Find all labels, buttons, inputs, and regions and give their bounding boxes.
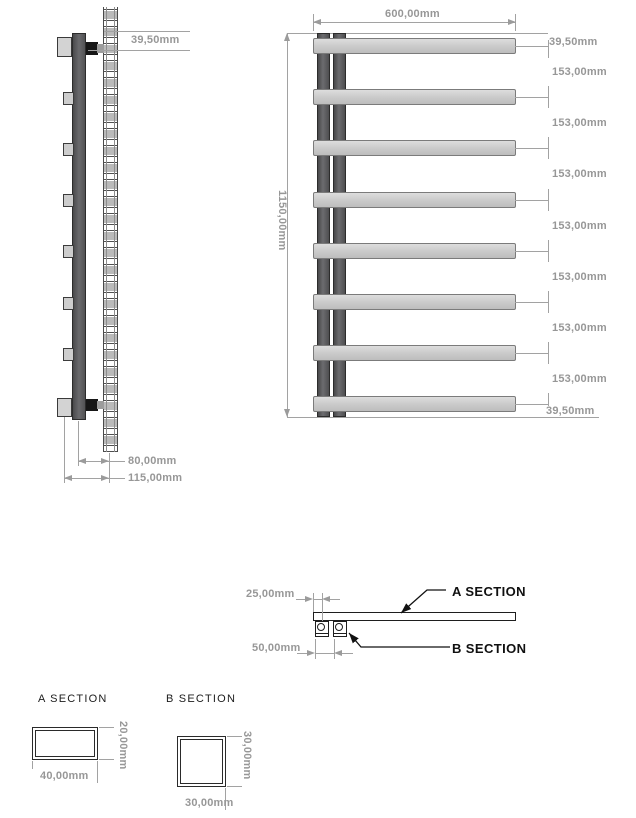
leader-line [515,200,548,201]
dimension-label: 20,00mm [116,721,129,771]
wall-tab [63,143,74,156]
bottom-connector-arm [97,401,104,409]
bar-section-cut [313,612,516,621]
dimension-label: 50,00mm [252,642,301,654]
dimension-label: 153,00mm [552,271,607,283]
a-section-callout: A SECTION [452,584,526,599]
tick-line [548,240,549,262]
dimension-line [64,478,125,479]
arrowhead-icon [334,650,342,656]
extension-line [99,727,114,728]
leader-line [515,46,548,47]
dimension-label: 40,00mm [40,770,89,782]
dimension-line [313,599,322,600]
dimension-label: 39,50mm [546,405,595,417]
tick-line [322,593,323,621]
b-section-leader-arrow [345,628,455,654]
dimension-label: 153,00mm [552,168,607,180]
arrowhead-icon [284,33,290,41]
dimension-label: 80,00mm [128,455,177,467]
towel-bar [313,243,516,259]
dimension-line [330,599,340,600]
arrowhead-icon [313,19,321,25]
top-connector-arm [97,44,104,53]
dimension-label: 39,50mm [131,34,180,46]
arrowhead-icon [101,458,109,464]
dimension-label: 1150,00mm [275,190,288,268]
dimension-label: 25,00mm [246,588,295,600]
arrowhead-icon [64,475,72,481]
dimension-line [342,653,353,654]
towel-bar [313,294,516,310]
arrowhead-icon [78,458,86,464]
dimension-label: 153,00mm [552,66,607,78]
tick-line [548,291,549,313]
dimension-label: 153,00mm [552,373,607,385]
arrowhead-icon [322,596,330,602]
towel-bar [313,192,516,208]
dimension-label: 153,00mm [552,117,607,129]
wall-tab [63,194,74,207]
towel-bar [313,345,516,361]
a-section-profile-inner-wall [35,730,95,757]
dimension-label: 30,00mm [185,797,234,809]
extension-line [32,761,33,769]
extension-line [287,417,599,418]
leader-line [515,353,548,354]
wall-tab [63,92,74,105]
towel-bar [313,140,516,156]
dimension-label: 30,00mm [240,731,253,788]
dimension-label: 600,00mm [385,8,440,20]
dimension-label: 153,00mm [552,220,607,232]
dimension-line [313,22,516,23]
tick-line [548,137,549,159]
towel-bar [313,89,516,105]
rail-panel-profile [103,7,118,452]
extension-line [99,759,114,760]
extension-line [104,31,190,32]
tube-section-line [334,633,346,634]
extension-line [97,761,98,783]
dimension-label: 153,00mm [552,322,607,334]
tick-line [315,639,316,659]
leader-line [515,302,548,303]
tick-line [548,342,549,364]
leader-line [515,404,548,405]
arrowhead-icon [307,650,315,656]
tick-line [313,593,314,612]
tick-line [548,189,549,211]
leader-line [515,251,548,252]
tube-section-cut [333,621,347,637]
b-section-callout: B SECTION [452,641,526,656]
wall-tab [63,245,74,258]
a-section-profile [32,727,98,760]
extension-line [64,417,65,483]
wall-tab [63,348,74,361]
tube-bore-circle-icon [335,623,343,631]
arrowhead-icon [305,596,313,602]
technical-drawing-page: 39,50mm 80,00mm 115,00mm [0,0,636,818]
dimension-label: 39,50mm [549,36,598,48]
tick-line [548,86,549,108]
tick-line [334,639,335,659]
towel-bar [313,396,516,412]
tube-section-cut [315,621,329,637]
dimension-line [315,653,334,654]
extension-line [88,50,190,51]
wall-tab [63,297,74,310]
arrowhead-icon [508,19,516,25]
detail-a-title: A SECTION [38,693,107,705]
leader-line [515,97,548,98]
arrowhead-icon [101,475,109,481]
arrowhead-icon [284,409,290,417]
b-section-profile-inner-wall [180,739,223,784]
tube-bore-circle-icon [317,623,325,631]
wall-bracket-top [57,37,72,57]
support-column-profile [72,33,86,420]
dimension-label: 115,00mm [128,472,182,484]
towel-bar [313,38,516,54]
wall-bracket-bottom [57,398,72,417]
b-section-profile [177,736,226,787]
tube-section-line [316,633,328,634]
leader-line [515,148,548,149]
detail-b-title: B SECTION [166,693,236,705]
